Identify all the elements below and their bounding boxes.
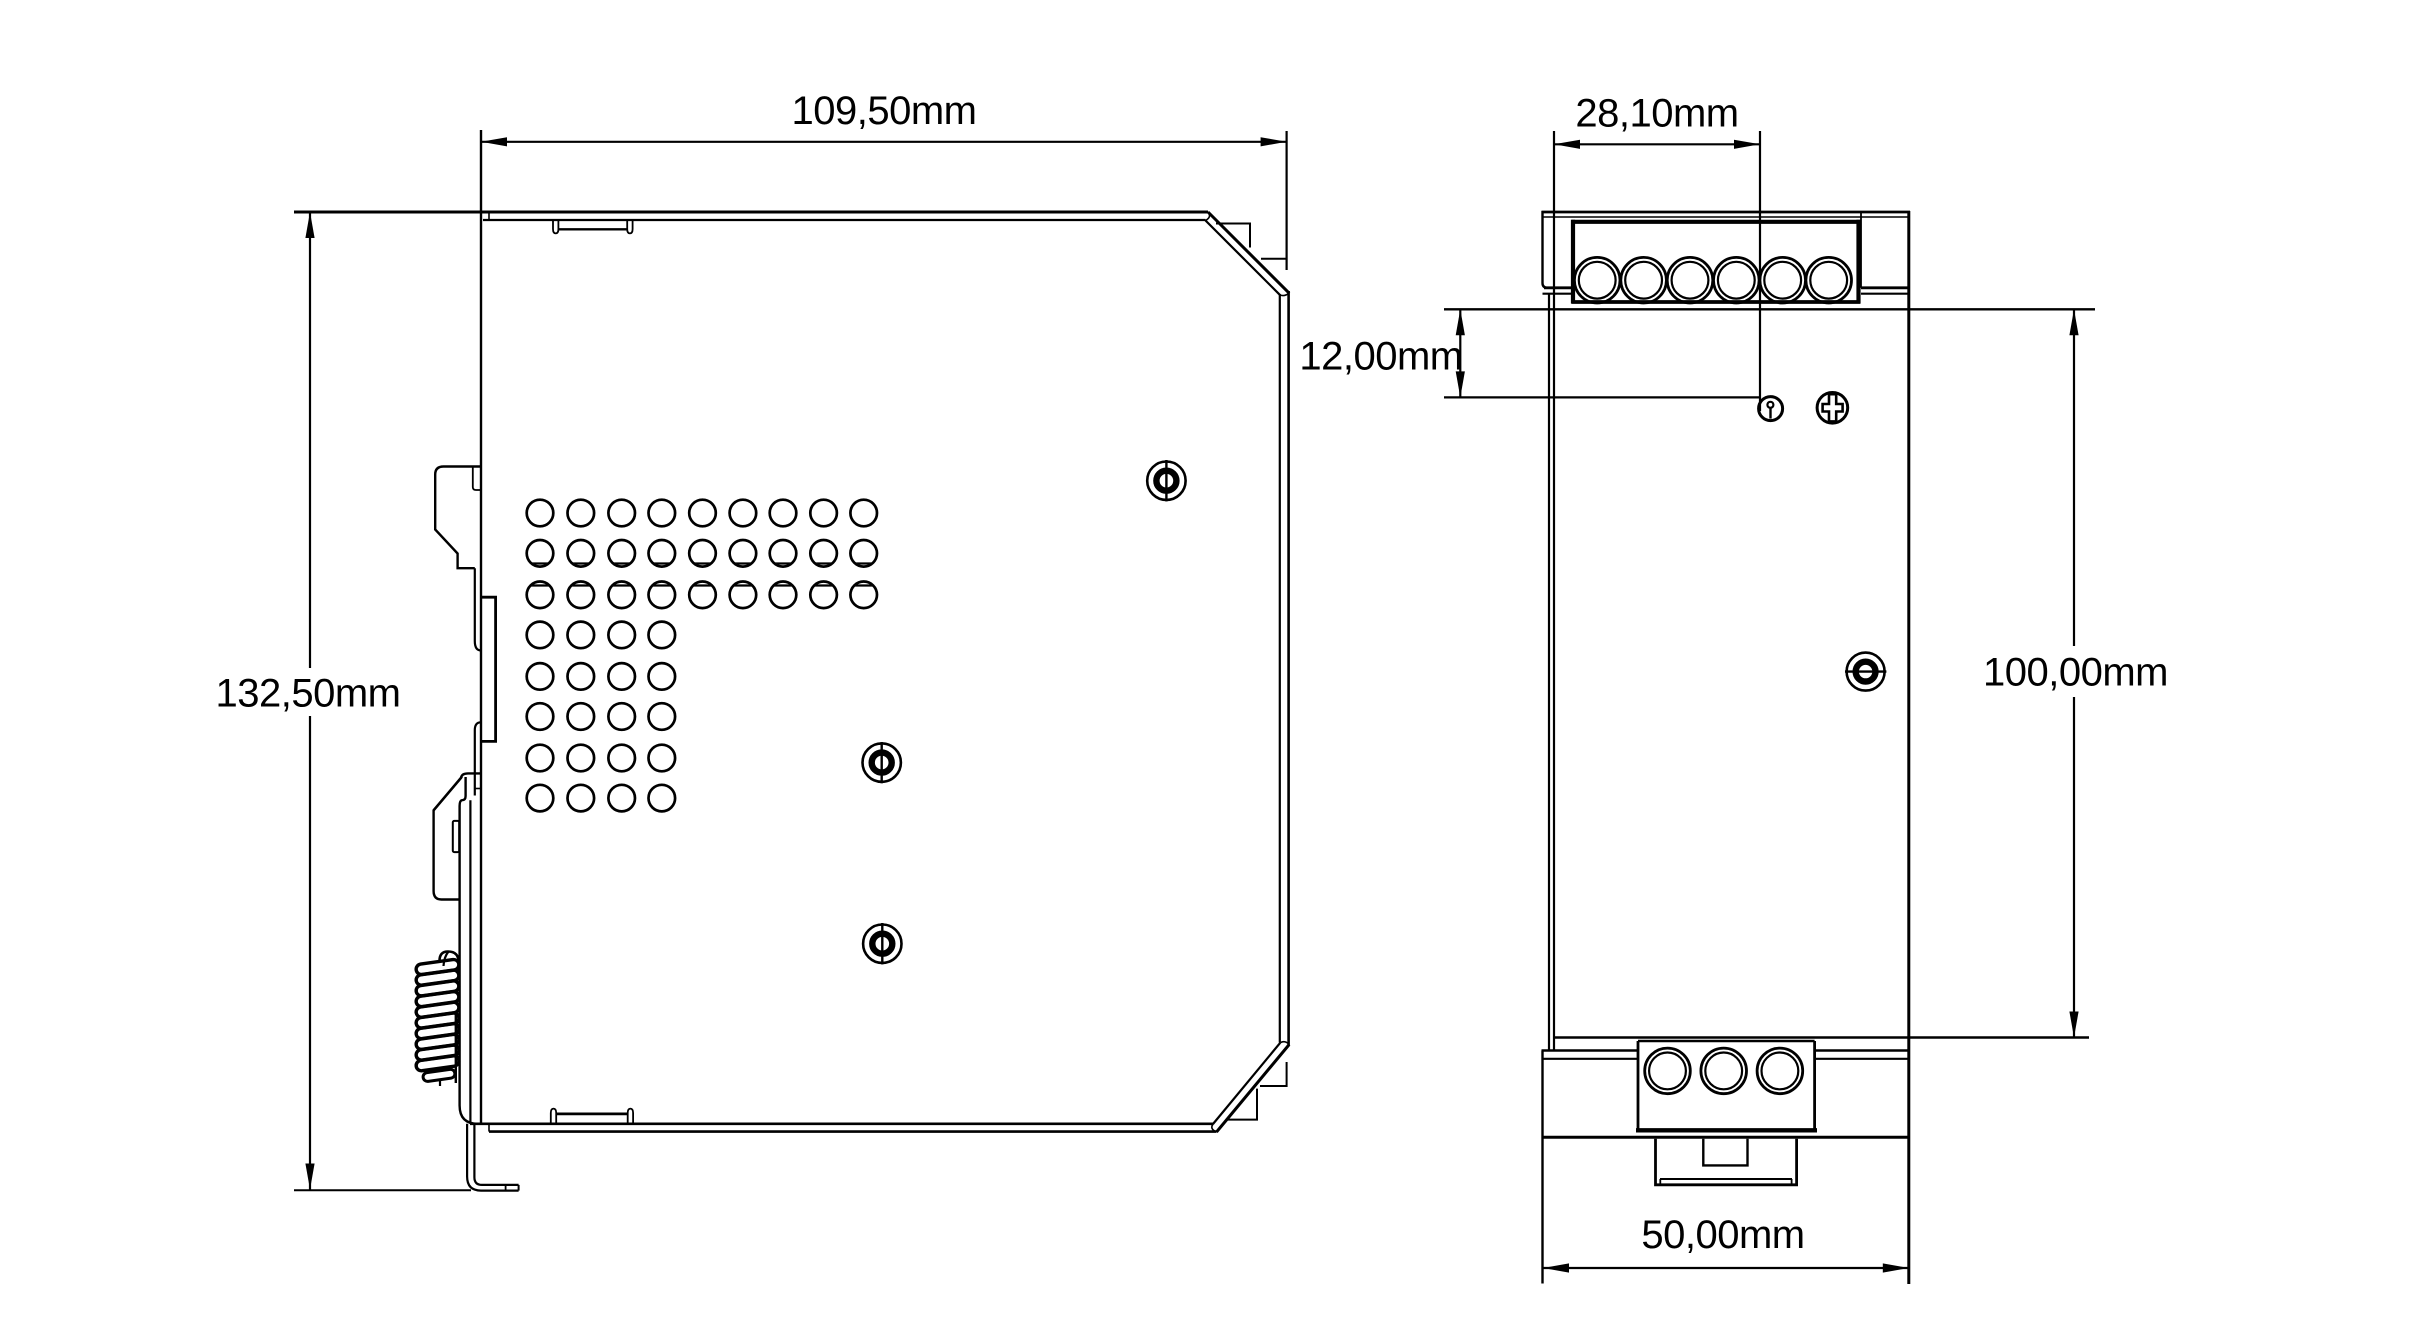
svg-text:100,00mm: 100,00mm <box>1983 651 2168 695</box>
svg-text:28,10mm: 28,10mm <box>1575 92 1738 136</box>
svg-text:50,00mm: 50,00mm <box>1641 1213 1804 1257</box>
svg-text:132,50mm: 132,50mm <box>216 672 401 716</box>
svg-text:109,50mm: 109,50mm <box>792 89 977 133</box>
svg-text:12,00mm: 12,00mm <box>1299 335 1462 379</box>
